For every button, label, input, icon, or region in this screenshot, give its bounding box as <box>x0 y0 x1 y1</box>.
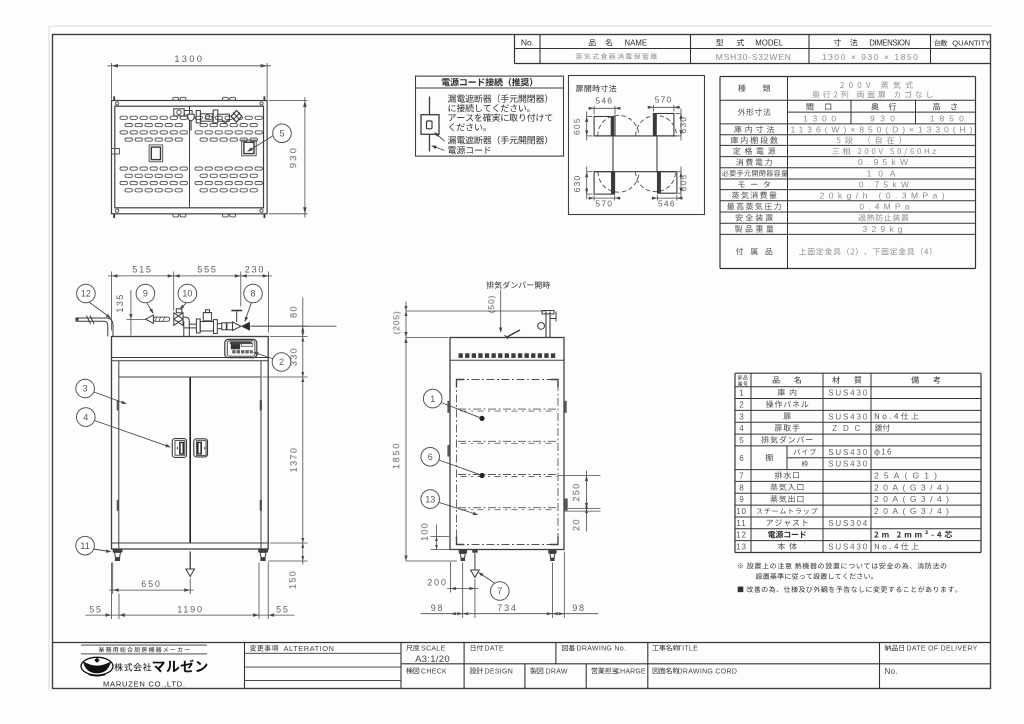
svg-text:1300: 1300 <box>174 54 204 65</box>
svg-text:13: 13 <box>736 543 747 552</box>
svg-text:25A(G1): 25A(G1) <box>874 471 937 481</box>
svg-text:5: 5 <box>739 436 744 445</box>
svg-text:DATE OF DELIVERY: DATE OF DELIVERY <box>907 646 978 653</box>
svg-text:DATE: DATE <box>485 646 504 653</box>
svg-text:DESIGN: DESIGN <box>485 668 514 675</box>
svg-text:605: 605 <box>572 117 582 135</box>
svg-text:12: 12 <box>736 531 747 540</box>
svg-text:DIMENSION: DIMENSION <box>869 39 910 48</box>
svg-text:734: 734 <box>497 603 517 613</box>
svg-text:3: 3 <box>739 412 744 421</box>
svg-text:DRAWING CORD: DRAWING CORD <box>678 668 738 675</box>
svg-text:6: 6 <box>428 452 433 462</box>
svg-text:930: 930 <box>870 113 895 123</box>
svg-text:SCALE: SCALE <box>421 646 445 653</box>
svg-text:10: 10 <box>736 507 747 516</box>
svg-text:DRAWING No.: DRAWING No. <box>577 646 627 653</box>
svg-text:100: 100 <box>420 522 430 541</box>
svg-text:555: 555 <box>197 265 217 275</box>
svg-text:55: 55 <box>276 604 290 614</box>
svg-text:5: 5 <box>279 129 284 139</box>
svg-text:570: 570 <box>655 95 673 105</box>
svg-text:ALTERATION: ALTERATION <box>284 644 335 653</box>
svg-text:1: 1 <box>739 389 744 398</box>
svg-text:13: 13 <box>425 494 435 504</box>
svg-text:4: 4 <box>83 412 88 422</box>
svg-text:1190: 1190 <box>177 604 204 614</box>
svg-text:ZDC: ZDC <box>832 424 860 433</box>
svg-text:DRAW: DRAW <box>546 668 568 675</box>
svg-text:2: 2 <box>739 401 744 410</box>
svg-text:10: 10 <box>182 289 192 299</box>
svg-text:TITLE: TITLE <box>678 646 699 653</box>
svg-text:(50): (50) <box>486 295 496 313</box>
svg-text:546: 546 <box>595 96 613 106</box>
svg-text:80: 80 <box>289 305 299 318</box>
svg-text:10A: 10A <box>867 168 896 178</box>
svg-text:(205): (205) <box>391 311 401 335</box>
svg-text:9: 9 <box>739 495 744 504</box>
svg-text:570: 570 <box>595 199 613 209</box>
svg-text:55: 55 <box>89 604 103 614</box>
svg-text:1850: 1850 <box>391 442 401 469</box>
svg-text:3: 3 <box>83 384 88 394</box>
svg-text:546: 546 <box>658 199 676 209</box>
svg-text:20A(G3/4): 20A(G3/4) <box>874 506 949 516</box>
svg-text:MSH30-S32WEN: MSH30-S32WEN <box>716 52 791 62</box>
svg-text:1370: 1370 <box>289 447 299 473</box>
svg-text:CHECK: CHECK <box>421 668 447 675</box>
svg-text:7: 7 <box>739 472 744 481</box>
svg-text:8: 8 <box>739 483 744 492</box>
svg-text:20A(G3/4): 20A(G3/4) <box>874 494 949 504</box>
svg-text:515: 515 <box>132 265 152 275</box>
svg-text:20: 20 <box>571 518 581 531</box>
svg-text:No.: No. <box>521 38 534 48</box>
svg-text:250: 250 <box>571 482 581 501</box>
svg-text:4: 4 <box>739 424 744 433</box>
svg-text:930: 930 <box>288 146 299 168</box>
svg-text:No.: No. <box>885 667 898 676</box>
svg-text:12: 12 <box>81 289 91 299</box>
svg-text:NAME: NAME <box>625 39 648 48</box>
svg-text:150: 150 <box>288 570 298 589</box>
svg-text:A3:1/20: A3:1/20 <box>415 654 450 665</box>
svg-text:2: 2 <box>279 357 284 367</box>
svg-text:98: 98 <box>431 603 445 613</box>
svg-text:MARUZEN CO.,LTD.: MARUZEN CO.,LTD. <box>103 680 185 689</box>
svg-text:9: 9 <box>143 289 148 299</box>
svg-text:8: 8 <box>250 289 255 299</box>
svg-text:630: 630 <box>572 175 582 193</box>
svg-text:11: 11 <box>80 541 89 551</box>
svg-text:135: 135 <box>115 293 125 312</box>
svg-text:230: 230 <box>245 265 265 275</box>
svg-text:200: 200 <box>427 578 447 588</box>
svg-text:98: 98 <box>572 603 586 613</box>
svg-text:20A(G3/4): 20A(G3/4) <box>874 482 949 492</box>
svg-text:CHARGE: CHARGE <box>615 668 646 675</box>
svg-text:650: 650 <box>141 579 161 589</box>
svg-text:7: 7 <box>497 586 502 596</box>
svg-text:11: 11 <box>736 519 746 528</box>
svg-text:1: 1 <box>430 394 435 404</box>
svg-text:MODEL: MODEL <box>755 39 783 48</box>
svg-text:QUANTITY: QUANTITY <box>952 39 990 48</box>
svg-text:6: 6 <box>739 454 744 463</box>
svg-text:1300 × 930 × 1850: 1300 × 930 × 1850 <box>822 52 918 62</box>
